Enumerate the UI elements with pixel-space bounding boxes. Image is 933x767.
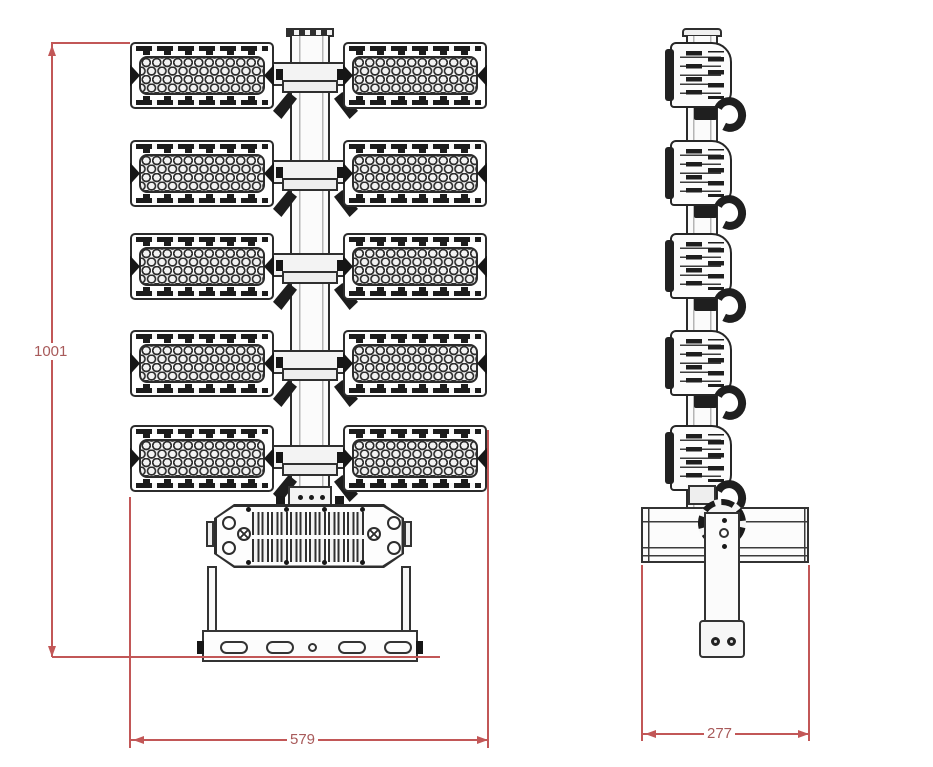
fin-slots xyxy=(686,434,702,482)
heatsink-strip xyxy=(136,198,268,203)
slot-oval xyxy=(338,641,366,654)
dimension-arrow-icon xyxy=(477,736,491,744)
led-module xyxy=(343,233,487,300)
module-clip-icon xyxy=(477,353,487,375)
fin-slots xyxy=(708,242,724,290)
led-module xyxy=(130,425,274,492)
slot-oval xyxy=(266,641,294,654)
fin-slots xyxy=(686,51,702,99)
screw-cross-icon xyxy=(237,527,251,541)
bolt-icon xyxy=(276,167,283,178)
dimension-extension-line xyxy=(808,565,810,741)
screw-icon xyxy=(284,560,289,565)
fin-slots xyxy=(708,149,724,197)
heatsink-tabs xyxy=(136,339,268,343)
lens-array xyxy=(352,439,478,478)
driver-box xyxy=(214,504,404,568)
heatsink-strip xyxy=(349,198,481,203)
pole-clamp xyxy=(272,62,348,86)
lens-array xyxy=(139,154,265,193)
pole-clamp xyxy=(272,445,348,469)
heatsink-tabs xyxy=(349,339,481,343)
slot-oval xyxy=(220,641,248,654)
heatsink-tabs xyxy=(349,242,481,246)
screw-icon xyxy=(320,495,325,500)
lens-array xyxy=(139,247,265,286)
led-module xyxy=(343,42,487,109)
fin-slots xyxy=(708,339,724,387)
bolt-icon xyxy=(276,260,283,271)
led-module xyxy=(130,42,274,109)
pole-clamp xyxy=(272,160,348,184)
screw-icon xyxy=(722,518,727,523)
lens-array xyxy=(139,344,265,383)
screw-icon xyxy=(322,507,327,512)
screw-cross-icon xyxy=(367,527,381,541)
dimension-height-label: 1001 xyxy=(31,343,70,360)
heatsink-strip xyxy=(349,291,481,296)
fin-slots xyxy=(708,434,724,482)
screw-icon xyxy=(246,560,251,565)
screw-icon xyxy=(284,507,289,512)
heatsink-tabs xyxy=(349,51,481,55)
heatsink-tabs xyxy=(136,51,268,55)
module-clip-icon xyxy=(264,163,274,185)
screw-icon xyxy=(309,495,314,500)
module-clip-icon xyxy=(264,353,274,375)
screw-icon xyxy=(722,544,727,549)
lens-array xyxy=(139,439,265,478)
dimension-extension-line xyxy=(641,565,643,741)
heatsink-strip xyxy=(349,483,481,488)
dimension-depth-label: 277 xyxy=(704,725,735,742)
pole-connector xyxy=(288,486,332,506)
bracket-clip xyxy=(197,641,204,654)
screw-icon xyxy=(360,507,365,512)
fin-slots xyxy=(686,242,702,290)
lens-array xyxy=(352,344,478,383)
driver-box-tab xyxy=(206,521,214,547)
heatsink-tabs xyxy=(136,434,268,438)
heatsink-strip xyxy=(349,388,481,393)
heatsink-tabs xyxy=(349,149,481,153)
module-clip-icon xyxy=(264,256,274,278)
pole-clamp xyxy=(272,253,348,277)
heatsink-strip xyxy=(136,483,268,488)
led-module xyxy=(343,330,487,397)
technical-drawing: 1001 579 277 xyxy=(0,0,933,767)
heatsink-strip xyxy=(349,100,481,105)
heatsink-strip xyxy=(136,291,268,296)
heatsink-strip xyxy=(136,388,268,393)
led-module xyxy=(130,140,274,207)
dimension-arrow-icon xyxy=(130,736,144,744)
screw-icon xyxy=(246,507,251,512)
screw-icon xyxy=(322,560,327,565)
led-module xyxy=(130,233,274,300)
dimension-extension-line xyxy=(52,656,440,658)
bolt-icon xyxy=(276,357,283,368)
module-clip-icon xyxy=(477,448,487,470)
dimension-arrow-icon xyxy=(48,42,56,56)
led-module xyxy=(343,140,487,207)
led-module xyxy=(343,425,487,492)
dimension-arrow-icon xyxy=(642,730,656,738)
dimension-arrow-icon xyxy=(48,646,56,660)
pole-clamp xyxy=(272,350,348,374)
module-clip-icon xyxy=(477,163,487,185)
hole-icon xyxy=(387,541,401,555)
heatsink-tabs xyxy=(136,242,268,246)
bracket-rail xyxy=(207,566,217,634)
dimension-width-label: 579 xyxy=(287,731,318,748)
arm-plate xyxy=(699,620,745,658)
pivot-pin xyxy=(719,528,729,538)
hole-icon xyxy=(308,643,317,652)
vent-slots xyxy=(252,512,366,535)
bracket-clip xyxy=(416,641,423,654)
hole-icon xyxy=(222,541,236,555)
bracket-rail xyxy=(401,566,411,634)
bolt-icon xyxy=(276,69,283,80)
module-clip-icon xyxy=(264,448,274,470)
slot-oval xyxy=(384,641,412,654)
led-module xyxy=(130,330,274,397)
heatsink-strip xyxy=(136,100,268,105)
hole-icon xyxy=(222,516,236,530)
connector-foot xyxy=(276,496,285,505)
lens-array xyxy=(139,56,265,95)
driver-box-tab xyxy=(404,521,412,547)
module-clip-icon xyxy=(477,65,487,87)
fin-slots xyxy=(708,51,724,99)
dimension-extension-line xyxy=(487,430,489,748)
fin-slots xyxy=(686,149,702,197)
heatsink-tabs xyxy=(136,149,268,153)
module-clip-icon xyxy=(477,256,487,278)
dimension-extension-line xyxy=(129,497,131,748)
module-clip-icon xyxy=(264,65,274,87)
hole-icon xyxy=(711,637,720,646)
lens-array xyxy=(352,154,478,193)
lens-array xyxy=(352,56,478,95)
bolt-icon xyxy=(276,452,283,463)
screw-icon xyxy=(298,495,303,500)
screw-icon xyxy=(360,560,365,565)
lens-array xyxy=(352,247,478,286)
hole-icon xyxy=(387,516,401,530)
heatsink-tabs xyxy=(349,434,481,438)
connector-foot xyxy=(335,496,344,505)
fin-slots xyxy=(686,339,702,387)
dimension-extension-line xyxy=(52,42,130,44)
hole-icon xyxy=(727,637,736,646)
dimension-arrow-icon xyxy=(798,730,812,738)
vent-slots xyxy=(252,539,366,562)
